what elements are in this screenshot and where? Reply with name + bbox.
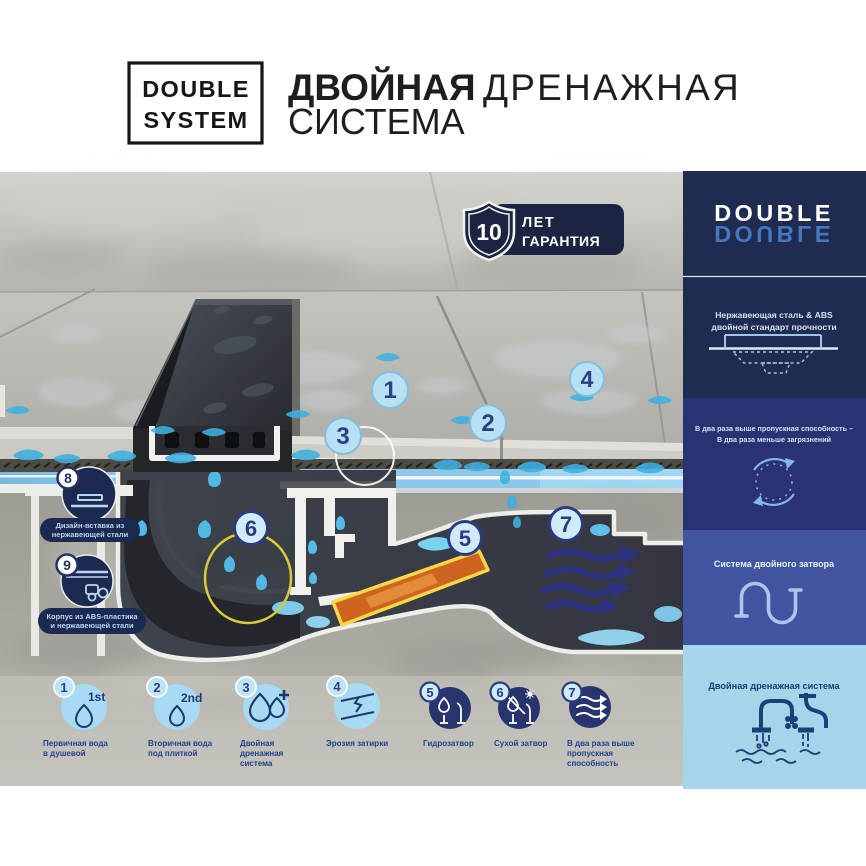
svg-text:3: 3: [336, 423, 349, 450]
svg-text:1: 1: [60, 680, 67, 695]
svg-text:двойной стандарт прочности: двойной стандарт прочности: [711, 322, 836, 332]
svg-text:5: 5: [459, 526, 471, 551]
svg-text:дренажная: дренажная: [240, 749, 284, 758]
svg-text:под плиткой: под плиткой: [148, 749, 197, 758]
svg-text:система: система: [240, 759, 273, 768]
svg-text:Система двойного затвора: Система двойного затвора: [714, 559, 835, 569]
svg-text:ЛЕТ: ЛЕТ: [522, 215, 555, 231]
svg-text:3: 3: [242, 680, 249, 695]
svg-text:Нержавеющая сталь & ABS: Нержавеющая сталь & ABS: [715, 310, 833, 320]
svg-text:пропускная: пропускная: [567, 749, 613, 758]
svg-text:Корпус из ABS-пластика: Корпус из ABS-пластика: [46, 612, 138, 621]
svg-text:5: 5: [426, 685, 433, 700]
svg-text:в душевой: в душевой: [43, 749, 86, 758]
svg-text:Двойная дренажная система: Двойная дренажная система: [708, 681, 840, 691]
svg-text:В два раза выше: В два раза выше: [567, 739, 635, 748]
svg-text:СИСТЕМА: СИСТЕМА: [288, 101, 465, 142]
svg-text:ГАРАНТИЯ: ГАРАНТИЯ: [522, 233, 600, 249]
svg-text:2nd: 2nd: [181, 691, 202, 705]
svg-text:способность: способность: [567, 759, 618, 768]
svg-text:4: 4: [333, 679, 341, 694]
svg-text:В два раза меньше загрязнений: В два раза меньше загрязнений: [717, 435, 831, 444]
svg-text:SYSTEM: SYSTEM: [143, 107, 248, 133]
svg-text:ДРЕНАЖНАЯ: ДРЕНАЖНАЯ: [483, 67, 741, 108]
svg-text:2: 2: [153, 680, 160, 695]
svg-text:нержавеющей стали: нержавеющей стали: [52, 530, 129, 539]
svg-text:DOUBLE: DOUBLE: [142, 76, 250, 102]
svg-text:6: 6: [496, 685, 503, 700]
svg-text:9: 9: [63, 557, 71, 573]
svg-text:Дизайн-вставка из: Дизайн-вставка из: [56, 521, 125, 530]
svg-text:1st: 1st: [88, 690, 105, 704]
svg-text:DOUBLE: DOUBLE: [714, 221, 834, 247]
svg-text:Сухой затвор: Сухой затвор: [494, 739, 548, 748]
svg-text:Вторичная вода: Вторичная вода: [148, 739, 213, 748]
svg-text:В два раза выше пропускная спо: В два раза выше пропускная способность –: [695, 424, 853, 433]
svg-text:Эрозия затирки: Эрозия затирки: [326, 739, 388, 748]
svg-text:7: 7: [568, 685, 575, 700]
svg-text:1: 1: [383, 377, 396, 404]
svg-text:6: 6: [245, 516, 257, 541]
svg-text:4: 4: [581, 366, 594, 392]
svg-text:Гидрозатвор: Гидрозатвор: [423, 739, 474, 748]
svg-text:2: 2: [481, 410, 494, 437]
svg-text:и нержавеющей стали: и нержавеющей стали: [50, 621, 134, 630]
svg-text:Двойная: Двойная: [240, 739, 275, 748]
svg-text:7: 7: [560, 512, 572, 537]
svg-text:Первичная вода: Первичная вода: [43, 739, 108, 748]
svg-text:8: 8: [64, 470, 72, 486]
svg-text:10: 10: [476, 219, 502, 245]
